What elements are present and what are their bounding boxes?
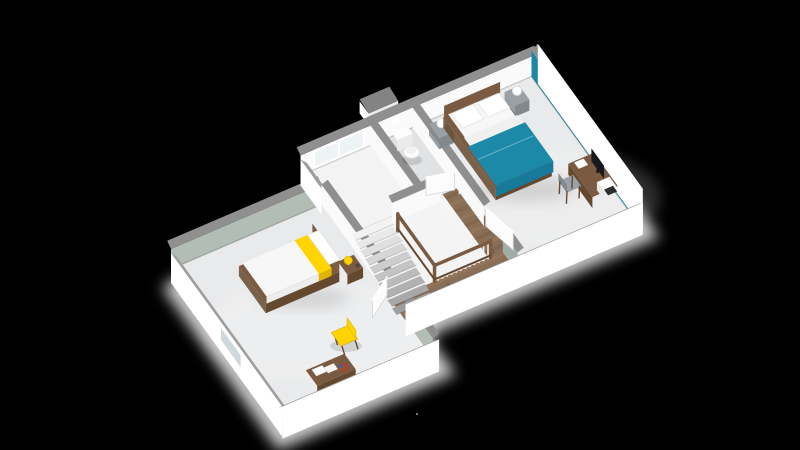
chair-leg (572, 176, 573, 188)
render-speck (416, 413, 418, 415)
floorplan-3d-render (0, 0, 800, 450)
small-dark-item (356, 263, 360, 267)
chair-leg (579, 186, 580, 198)
toy-dot-blue (339, 364, 342, 367)
mushroom-lamp (344, 256, 352, 264)
chair-leg (566, 192, 567, 204)
toilet-seat (406, 147, 416, 154)
ball-lamp (512, 86, 521, 95)
floorplan-svg (0, 0, 800, 450)
chair-leg (559, 182, 560, 194)
